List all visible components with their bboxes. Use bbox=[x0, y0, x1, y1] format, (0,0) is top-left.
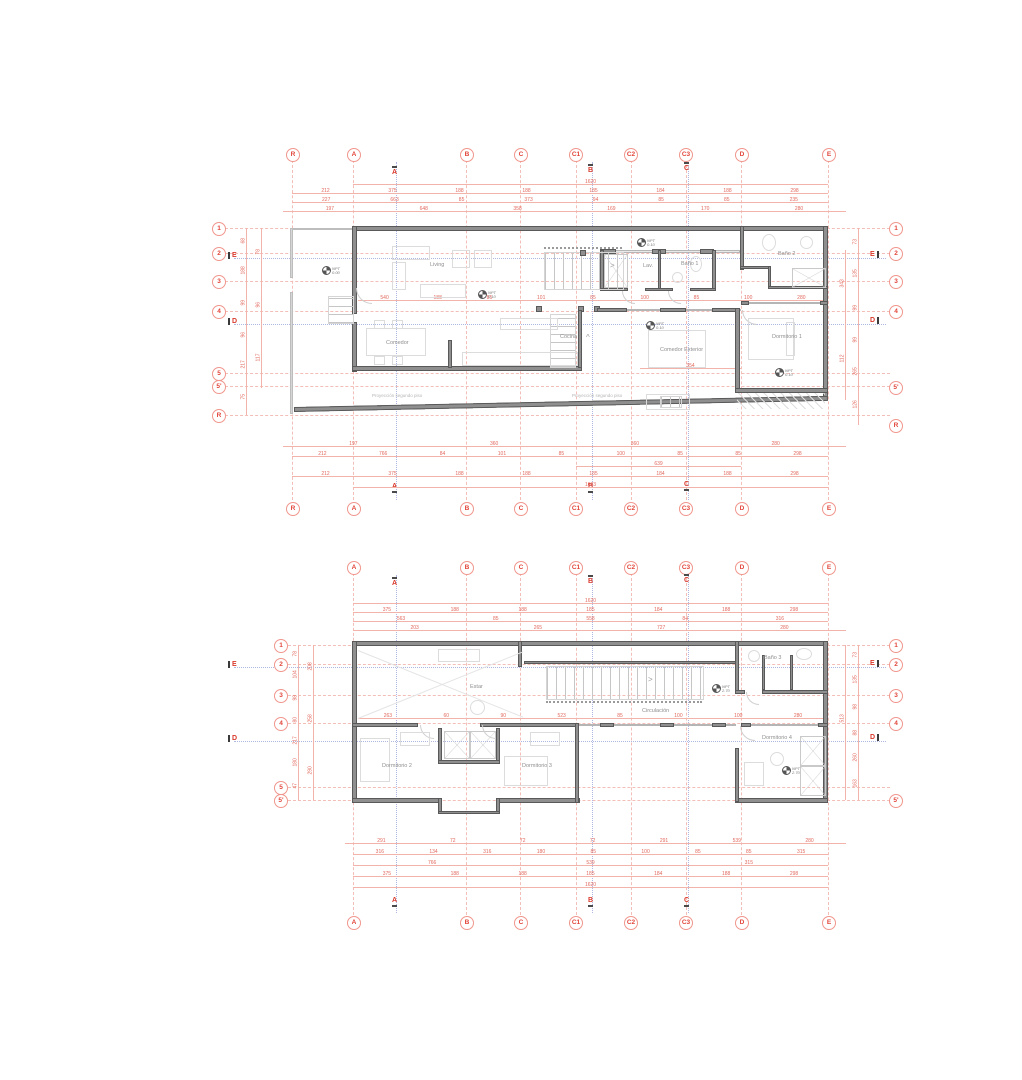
stair-railing bbox=[546, 701, 702, 703]
grill-grate bbox=[660, 396, 682, 408]
grid-bubble-E: E bbox=[822, 561, 836, 575]
interior-wall bbox=[690, 288, 716, 291]
chair bbox=[770, 752, 784, 766]
wall-pier bbox=[712, 308, 737, 312]
dimension-row: 203265727280 bbox=[353, 630, 846, 631]
grid-bubble-C3: C3 bbox=[679, 148, 693, 162]
benchmark-icon bbox=[646, 321, 655, 330]
gridline-E bbox=[828, 573, 829, 915]
dimension-value: 188 bbox=[242, 274, 247, 276]
grid-bubble-B: B bbox=[460, 502, 474, 516]
row-bubble-1: 1 bbox=[274, 639, 288, 653]
closet bbox=[800, 766, 826, 796]
grid-bubble-B: B bbox=[460, 561, 474, 575]
room-label-dormitorio3: Dormitorio 3 bbox=[522, 763, 552, 769]
gridline-D bbox=[741, 573, 742, 915]
interior-wall bbox=[740, 226, 744, 270]
interior-wall bbox=[735, 690, 745, 694]
dimension-value: 126 bbox=[854, 408, 859, 410]
grid-bubble-C1: C1 bbox=[569, 561, 583, 575]
section-marker-C: C bbox=[684, 162, 689, 172]
interior-wall bbox=[524, 661, 738, 664]
row-bubble-R: R bbox=[889, 419, 903, 433]
section-line-A bbox=[396, 575, 397, 913]
projection-note: Proyección segundo piso bbox=[572, 393, 622, 398]
dimension-row: 766539315 bbox=[353, 865, 828, 866]
sofa bbox=[392, 246, 430, 260]
dimension-row: 197648358169170280 bbox=[283, 211, 846, 212]
level-marker: NPT2.70 bbox=[782, 766, 800, 775]
exterior-wall-east bbox=[823, 226, 828, 399]
section-marker-A: A bbox=[392, 483, 397, 493]
section-marker-B: B bbox=[588, 164, 593, 174]
grid-bubble-R: R bbox=[286, 502, 300, 516]
toilet bbox=[762, 234, 776, 251]
dimension-column: 7896117 bbox=[261, 228, 262, 388]
section-marker-D: D bbox=[228, 735, 237, 742]
level-marker: NPT0.10 bbox=[478, 290, 496, 299]
level-marker: NPT0.10 bbox=[637, 238, 655, 247]
level-marker: NPT2.70 bbox=[712, 684, 730, 693]
section-line-B bbox=[592, 162, 593, 500]
section-marker-E: E bbox=[228, 661, 237, 668]
dimension-row: 5638555884316 bbox=[353, 621, 828, 622]
row-bubble-3: 3 bbox=[889, 275, 903, 289]
dimension-column: 78104988021718047 bbox=[298, 645, 299, 800]
chair bbox=[374, 356, 385, 365]
level-marker: NPT0.10 bbox=[646, 321, 664, 330]
grid-bubble-E: E bbox=[822, 148, 836, 162]
interior-wall bbox=[735, 308, 740, 392]
gridline-C3 bbox=[686, 573, 687, 915]
dimension-value: 135 bbox=[854, 276, 859, 278]
dimension-value: 260 bbox=[854, 760, 859, 762]
dimension-value: 98 bbox=[294, 699, 299, 701]
interior-wall bbox=[352, 366, 582, 371]
hatched-patio bbox=[737, 393, 825, 409]
section-marker-A: A bbox=[392, 897, 397, 907]
wall-pier bbox=[660, 308, 686, 312]
shower bbox=[792, 268, 826, 288]
dimension-row: 21276684101851008585298 bbox=[292, 456, 828, 457]
wall-pier bbox=[712, 723, 726, 727]
interior-wall bbox=[735, 641, 739, 693]
section-line-C bbox=[688, 575, 689, 913]
row-bubble-4: 4 bbox=[274, 717, 288, 731]
benchmark-icon bbox=[637, 238, 646, 247]
wall-pier bbox=[660, 723, 674, 727]
desk bbox=[400, 732, 430, 746]
sofa bbox=[392, 262, 406, 290]
room-label-comedor: Comedor bbox=[386, 340, 409, 346]
section-marker-A: A bbox=[392, 577, 397, 587]
dimension-value: 112 bbox=[841, 362, 846, 364]
interior-wall bbox=[658, 250, 661, 290]
sink bbox=[800, 236, 813, 249]
section-marker-C: C bbox=[684, 897, 689, 907]
dimension-value: 104 bbox=[294, 677, 299, 679]
gridline-C2 bbox=[631, 573, 632, 915]
dimension-row: 375188188185184188298 bbox=[353, 876, 828, 877]
dimension-value: 73 bbox=[854, 657, 859, 659]
projection-note: Proyección segundo piso bbox=[372, 393, 422, 398]
room-label-dormitorio1: Dormitorio 1 bbox=[772, 334, 802, 340]
chair bbox=[392, 356, 403, 365]
wall-pier bbox=[741, 301, 749, 305]
dimension-value: 265 bbox=[854, 375, 859, 377]
row-bubble-2: 2 bbox=[274, 658, 288, 672]
dimension-value: 80 bbox=[294, 721, 299, 723]
grid-bubble-C: C bbox=[514, 148, 528, 162]
interior-wall bbox=[448, 340, 452, 368]
row-bubble-1: 1 bbox=[889, 639, 903, 653]
section-marker-B: B bbox=[588, 575, 593, 585]
interior-wall bbox=[740, 266, 770, 269]
section-line-D bbox=[234, 741, 886, 742]
dimension-row: 354 bbox=[640, 368, 741, 369]
closet bbox=[444, 731, 470, 759]
dimension-row: 197360360280 bbox=[283, 446, 846, 447]
interior-wall bbox=[575, 723, 579, 803]
dimension-row: 22766385373948585235 bbox=[292, 202, 828, 203]
room-label-dormitorio2: Dormitorio 2 bbox=[382, 763, 412, 769]
dimension-value: 47 bbox=[294, 788, 299, 790]
dimension-column: 731359999265126 bbox=[858, 228, 859, 425]
column bbox=[580, 250, 586, 256]
dimension-value: 217 bbox=[242, 367, 247, 369]
dimension-value: 96 bbox=[242, 336, 247, 338]
interior-wall bbox=[712, 250, 716, 290]
gridline-C bbox=[520, 573, 521, 915]
grid-bubble-C1: C1 bbox=[569, 916, 583, 930]
room-label-bano2: Baño 2 bbox=[778, 251, 795, 257]
row-bubble-3: 3 bbox=[212, 275, 226, 289]
benchmark-icon bbox=[782, 766, 791, 775]
closet-wall bbox=[496, 728, 500, 762]
room-label-dormitorio4: Dormitorio 4 bbox=[762, 735, 792, 741]
row-bubble-2: 2 bbox=[889, 658, 903, 672]
grid-bubble-A: A bbox=[347, 561, 361, 575]
closet-wall bbox=[438, 728, 442, 762]
row-bubble-1: 1 bbox=[889, 222, 903, 236]
chair bbox=[374, 320, 385, 329]
wall-pier bbox=[600, 723, 614, 727]
grid-bubble-D: D bbox=[735, 916, 749, 930]
grid-bubble-A: A bbox=[347, 148, 361, 162]
boundary-wall bbox=[290, 228, 293, 278]
room-label-lav: Lav. bbox=[643, 263, 653, 269]
interior-wall bbox=[352, 723, 418, 727]
sink bbox=[672, 272, 683, 283]
kitchen-counter bbox=[462, 352, 578, 366]
dimension-row-total: 1620 bbox=[353, 184, 828, 185]
dimension-row-total: 1620 bbox=[353, 603, 828, 604]
wall-pier bbox=[820, 301, 828, 305]
grid-bubble-R: R bbox=[286, 148, 300, 162]
room-label-circulacion: Circulación bbox=[642, 708, 669, 714]
dimension-value: 513 bbox=[841, 722, 846, 724]
dimension-row-interior: 263609052385100100280 bbox=[358, 718, 828, 719]
stair-direction-arrow: > bbox=[648, 676, 653, 684]
bay-wall bbox=[438, 811, 500, 814]
section-marker-C: C bbox=[684, 481, 689, 491]
grid-bubble-C1: C1 bbox=[569, 148, 583, 162]
section-marker-D: D bbox=[870, 317, 879, 324]
dimension-column: 343112 bbox=[845, 250, 846, 400]
grid-bubble-D: D bbox=[735, 561, 749, 575]
exterior-wall-south bbox=[735, 798, 828, 803]
grid-bubble-B: B bbox=[460, 916, 474, 930]
grid-bubble-C2: C2 bbox=[624, 561, 638, 575]
grid-bubble-A: A bbox=[347, 916, 361, 930]
dimension-value: 290 bbox=[309, 773, 314, 775]
stair-railing bbox=[544, 247, 622, 249]
shower-wall bbox=[790, 655, 793, 690]
row-bubble-4: 4 bbox=[212, 305, 226, 319]
benchmark-icon bbox=[712, 684, 721, 693]
dimension-row: 212375188188185184188298 bbox=[292, 476, 828, 477]
room-label-bano1: Baño 1 bbox=[681, 261, 698, 267]
grid-bubble-C2: C2 bbox=[624, 502, 638, 516]
dimension-value: 163 bbox=[854, 786, 859, 788]
dimension-row: 639 bbox=[576, 466, 741, 467]
gridline-Rrow bbox=[225, 415, 890, 416]
boundary-wall bbox=[292, 228, 352, 230]
sink bbox=[748, 650, 760, 662]
room-label-living: Living bbox=[430, 262, 444, 268]
toilet bbox=[796, 648, 812, 660]
room-label-cocina: Cocina bbox=[560, 334, 577, 340]
staircase bbox=[546, 666, 704, 700]
dimension-column: 68188999621775 bbox=[246, 228, 247, 415]
section-marker-E: E bbox=[870, 660, 879, 667]
dimension-row: 316134316180851008585315 bbox=[353, 854, 828, 855]
bed bbox=[360, 738, 390, 782]
grid-bubble-C: C bbox=[514, 916, 528, 930]
dimension-value: 217 bbox=[294, 744, 299, 746]
up-arrow: ^ bbox=[586, 334, 590, 342]
dimension-value: 99 bbox=[242, 305, 247, 307]
dimension-value: 98 bbox=[854, 709, 859, 711]
closet-wall bbox=[438, 760, 500, 764]
section-marker-A: A bbox=[392, 166, 397, 176]
boundary-wall bbox=[290, 292, 293, 414]
desk bbox=[530, 732, 560, 746]
row-bubble-5: 5 bbox=[212, 367, 226, 381]
grid-bubble-C3: C3 bbox=[679, 916, 693, 930]
row-bubble-2: 2 bbox=[889, 247, 903, 261]
section-marker-E: E bbox=[870, 251, 879, 258]
gridline-4 bbox=[225, 311, 890, 312]
dimension-column: 731359888260163 bbox=[858, 645, 859, 800]
row-bubble-5p: 5' bbox=[212, 380, 226, 394]
laundry-closet bbox=[604, 254, 628, 288]
room-label-bano3: Baño 3 bbox=[764, 655, 781, 661]
row-bubble-3: 3 bbox=[889, 689, 903, 703]
dimension-value: 73 bbox=[854, 243, 859, 245]
closet bbox=[800, 736, 826, 766]
armchair bbox=[474, 250, 492, 268]
floor-plan-sheet: R A B C C1 C2 C3 D E R A B C C1 C2 C3 D … bbox=[0, 0, 1022, 1080]
dimension-value: 180 bbox=[294, 766, 299, 768]
dimension-value: 78 bbox=[294, 655, 299, 657]
table bbox=[420, 284, 466, 298]
dimension-row-interior: 540188851018510085100280 bbox=[358, 300, 828, 301]
column bbox=[536, 306, 542, 312]
level-marker: NPT0.10 bbox=[775, 368, 793, 377]
section-marker-D: D bbox=[228, 318, 237, 325]
interior-wall bbox=[578, 310, 582, 368]
interior-wall bbox=[735, 748, 739, 802]
row-bubble-2: 2 bbox=[212, 247, 226, 261]
grid-bubble-C2: C2 bbox=[624, 916, 638, 930]
dimension-value: 78 bbox=[257, 254, 262, 256]
exterior-wall-north bbox=[352, 641, 828, 646]
grid-bubble-C3: C3 bbox=[679, 502, 693, 516]
side-table bbox=[470, 700, 485, 715]
row-bubble-4: 4 bbox=[889, 717, 903, 731]
dimension-row-total: 1683 bbox=[353, 487, 828, 488]
dimension-row: 212375188188185184188298 bbox=[292, 193, 828, 194]
exterior-wall-west bbox=[352, 641, 357, 803]
exterior-wall-west bbox=[352, 322, 357, 372]
dimension-value: 88 bbox=[854, 734, 859, 736]
grid-bubble-D: D bbox=[735, 502, 749, 516]
dimension-value: 117 bbox=[257, 360, 262, 362]
chair bbox=[392, 320, 403, 329]
benchmark-icon bbox=[322, 266, 331, 275]
dimension-value: 99 bbox=[854, 309, 859, 311]
row-bubble-R: R bbox=[212, 409, 226, 423]
dimension-value: 208 bbox=[309, 670, 314, 672]
door-swing bbox=[622, 291, 635, 304]
row-bubble-5: 5 bbox=[274, 781, 288, 795]
exterior-wall-south bbox=[352, 798, 440, 803]
section-marker-B: B bbox=[588, 897, 593, 907]
door-swing bbox=[746, 692, 759, 705]
wall-pier bbox=[818, 723, 828, 727]
section-marker-E: E bbox=[228, 252, 237, 259]
grid-bubble-C1: C1 bbox=[569, 502, 583, 516]
row-bubble-5p: 5' bbox=[274, 794, 288, 808]
grid-bubble-C3: C3 bbox=[679, 561, 693, 575]
row-bubble-5p: 5' bbox=[889, 794, 903, 808]
window-band bbox=[741, 302, 828, 304]
dimension-column: 208258290 bbox=[313, 645, 314, 800]
exterior-wall-south bbox=[498, 798, 580, 803]
gridline-2 bbox=[288, 664, 890, 665]
row-bubble-4: 4 bbox=[889, 305, 903, 319]
dimension-column: 513 bbox=[845, 645, 846, 800]
room-label-comedor-exterior: Comedor Exterior bbox=[660, 347, 703, 353]
desk bbox=[744, 762, 764, 786]
interior-wall bbox=[762, 690, 828, 694]
dimension-value: 343 bbox=[841, 287, 846, 289]
section-marker-D: D bbox=[870, 734, 879, 741]
dimension-value: 96 bbox=[257, 307, 262, 309]
kitchen-island bbox=[500, 318, 558, 330]
wall-pier bbox=[597, 308, 627, 312]
grid-bubble-C: C bbox=[514, 502, 528, 516]
dimension-row: 291727272291539280 bbox=[345, 843, 846, 844]
dimension-value: 99 bbox=[854, 342, 859, 344]
grid-bubble-C2: C2 bbox=[624, 148, 638, 162]
row-bubble-5p: 5' bbox=[889, 381, 903, 395]
level-marker: NPT0.00 bbox=[322, 266, 340, 275]
exterior-wall-north bbox=[352, 226, 828, 231]
door-swing bbox=[668, 291, 681, 304]
door-swing bbox=[356, 288, 372, 304]
dimension-value: 258 bbox=[309, 721, 314, 723]
grid-bubble-D: D bbox=[735, 148, 749, 162]
grid-bubble-E: E bbox=[822, 502, 836, 516]
grid-bubble-C: C bbox=[514, 561, 528, 575]
benchmark-icon bbox=[775, 368, 784, 377]
dimension-row: 375188188185184188298 bbox=[353, 612, 828, 613]
dimension-row-total: 1620 bbox=[353, 887, 828, 888]
row-bubble-3: 3 bbox=[274, 689, 288, 703]
room-label-estar: Estar bbox=[470, 684, 483, 690]
dimension-value: 68 bbox=[242, 243, 247, 245]
benchmark-icon bbox=[478, 290, 487, 299]
door-swing bbox=[740, 726, 755, 741]
armchair bbox=[452, 250, 470, 268]
bed bbox=[504, 756, 548, 786]
dimension-value: 135 bbox=[854, 683, 859, 685]
grid-bubble-E: E bbox=[822, 916, 836, 930]
dimension-value: 75 bbox=[242, 398, 247, 400]
entry-steps bbox=[328, 296, 354, 324]
grid-bubble-A: A bbox=[347, 502, 361, 516]
row-bubble-1: 1 bbox=[212, 222, 226, 236]
grid-bubble-B: B bbox=[460, 148, 474, 162]
gridline-5p bbox=[225, 386, 890, 387]
section-marker-C: C bbox=[684, 574, 689, 584]
shelf bbox=[438, 649, 480, 662]
